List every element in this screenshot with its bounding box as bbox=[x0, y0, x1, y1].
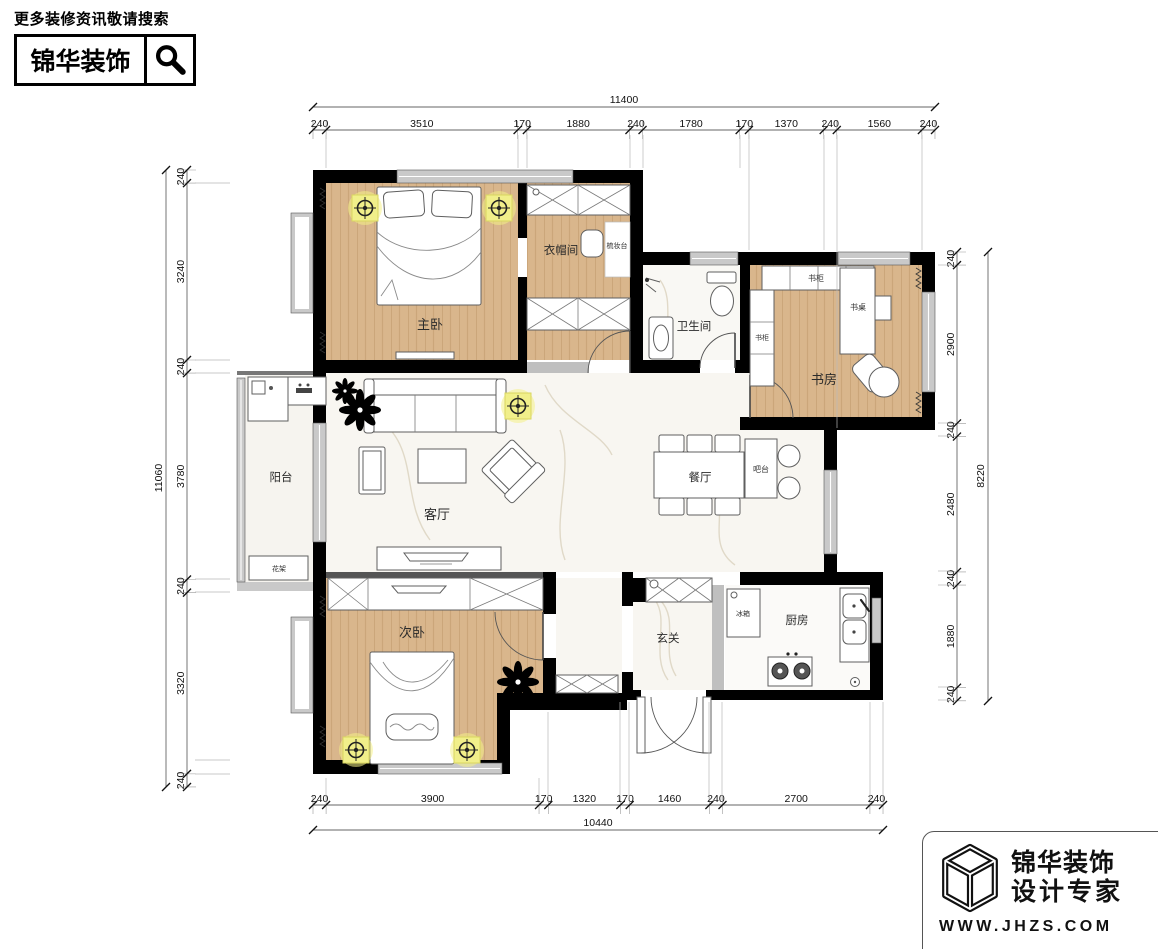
svg-text:3900: 3900 bbox=[421, 793, 445, 805]
dim-total-left: 11060 bbox=[153, 166, 170, 791]
svg-text:11060: 11060 bbox=[153, 464, 165, 493]
svg-text:1880: 1880 bbox=[566, 118, 590, 130]
dim-chain-bottom: 2403900170132017014602402700240 bbox=[309, 793, 887, 814]
header-note: 更多装修资讯敬请搜索 bbox=[14, 8, 196, 29]
label-master: 主卧 bbox=[417, 317, 443, 332]
footer-url: WWW.JHZS.COM bbox=[939, 918, 1155, 936]
label-bar: 吧台 bbox=[753, 464, 769, 474]
footer-logo-box: 锦华装饰 设计专家 WWW.JHZS.COM bbox=[922, 831, 1158, 949]
label-balcony: 阳台 bbox=[270, 470, 293, 484]
svg-text:3780: 3780 bbox=[175, 464, 187, 488]
brand-search-box: 锦华装饰 bbox=[14, 34, 196, 86]
label-fridge: 冰箱 bbox=[736, 609, 750, 618]
svg-text:240: 240 bbox=[945, 570, 957, 588]
footer-tagline: 设计专家 bbox=[1011, 878, 1123, 907]
svg-text:240: 240 bbox=[175, 772, 187, 790]
cube-logo-icon bbox=[939, 842, 1001, 914]
label-kitchen: 厨房 bbox=[786, 614, 809, 627]
svg-text:1880: 1880 bbox=[945, 625, 957, 649]
furniture-entry bbox=[646, 578, 712, 602]
svg-text:3320: 3320 bbox=[175, 671, 187, 695]
brand-name: 锦华装饰 bbox=[17, 37, 144, 83]
svg-text:3510: 3510 bbox=[410, 118, 434, 130]
svg-text:240: 240 bbox=[175, 577, 187, 595]
dim-total-bottom: 10440 bbox=[309, 817, 887, 834]
label-bookcase-top: 书柜 bbox=[808, 273, 824, 283]
label-dresser: 梳妆台 bbox=[607, 241, 628, 250]
footer-brand: 锦华装饰 bbox=[1011, 849, 1123, 878]
svg-text:3240: 3240 bbox=[175, 260, 187, 284]
svg-text:1370: 1370 bbox=[775, 118, 799, 130]
label-cloak: 衣帽间 bbox=[544, 243, 579, 257]
svg-text:11400: 11400 bbox=[610, 94, 639, 106]
dim-chain-top: 24035101701880240178017013702401560240 bbox=[309, 118, 939, 139]
svg-text:1320: 1320 bbox=[573, 793, 597, 805]
label-living: 客厅 bbox=[424, 507, 450, 522]
label-bath: 卫生间 bbox=[677, 319, 712, 333]
svg-text:240: 240 bbox=[945, 685, 957, 703]
label-flower-rack: 花架 bbox=[272, 564, 286, 573]
header: 更多装修资讯敬请搜索 锦华装饰 bbox=[14, 8, 196, 86]
dim-total-right: 8220 bbox=[975, 248, 992, 705]
svg-text:8220: 8220 bbox=[975, 464, 987, 488]
dim-chain-left: 240324024037802403320240 bbox=[175, 166, 196, 791]
svg-text:240: 240 bbox=[175, 358, 187, 376]
floor-plan: 主卧 衣帽间 梳妆台 卫生间 书房 书柜 书柜 书桌 阳台 花架 客厅 餐厅 吧… bbox=[0, 0, 1158, 949]
dim-chain-right: 240290024024802401880240 bbox=[945, 248, 966, 705]
search-icon bbox=[144, 37, 193, 83]
svg-text:1780: 1780 bbox=[679, 118, 703, 130]
svg-text:1560: 1560 bbox=[868, 118, 892, 130]
svg-text:1460: 1460 bbox=[658, 793, 682, 805]
svg-text:2700: 2700 bbox=[785, 793, 809, 805]
page: 更多装修资讯敬请搜索 锦华装饰 bbox=[0, 0, 1158, 949]
svg-text:240: 240 bbox=[175, 168, 187, 186]
label-study: 书房 bbox=[811, 372, 837, 387]
label-entry: 玄关 bbox=[657, 631, 680, 645]
label-bookcase-left: 书柜 bbox=[755, 333, 769, 342]
svg-text:2480: 2480 bbox=[945, 492, 957, 516]
label-desk: 书桌 bbox=[850, 302, 866, 312]
svg-text:10440: 10440 bbox=[583, 817, 612, 829]
label-dining: 餐厅 bbox=[689, 470, 712, 484]
dim-total-top: 11400 bbox=[309, 94, 939, 111]
svg-text:2900: 2900 bbox=[945, 332, 957, 356]
label-bedroom2: 次卧 bbox=[399, 625, 425, 640]
